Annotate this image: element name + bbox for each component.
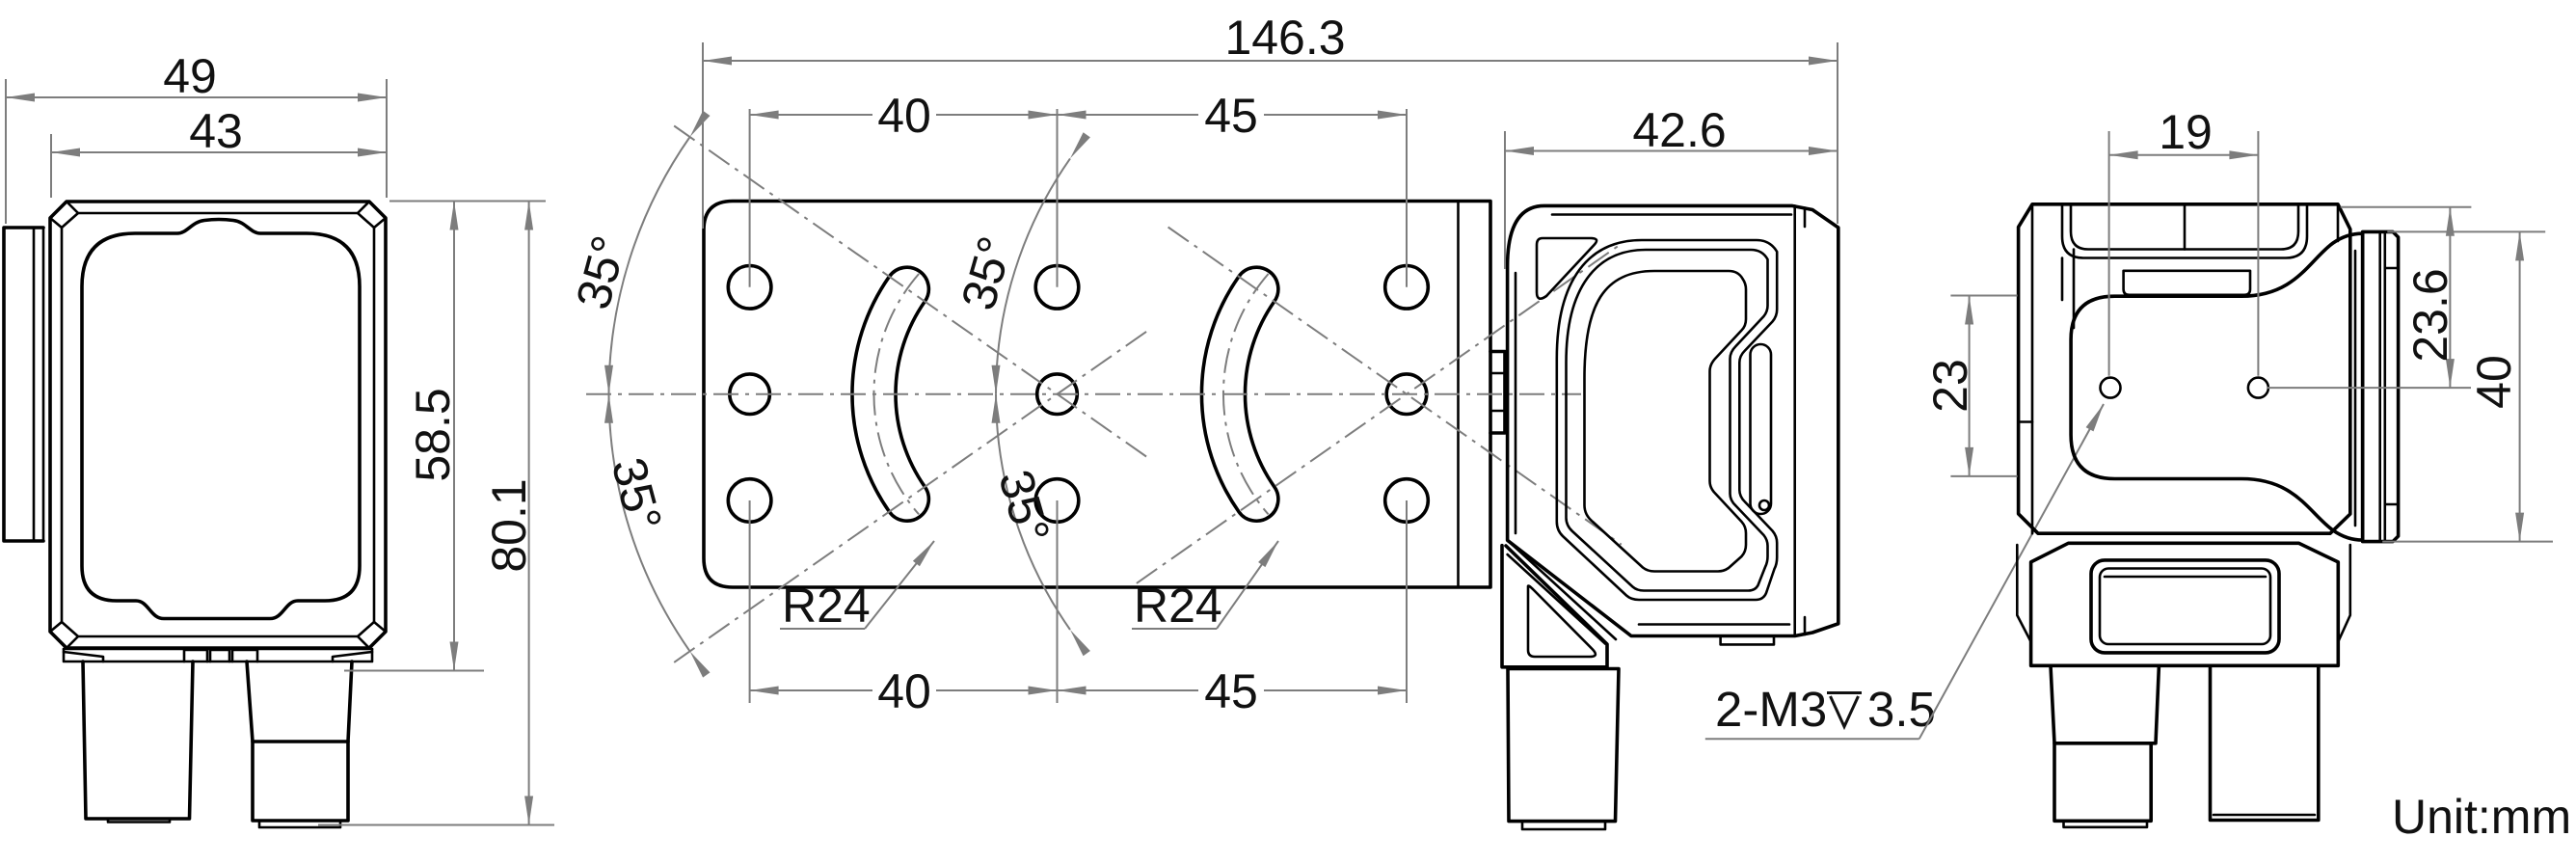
svg-text:Unit:mm: Unit:mm [2392,790,2571,844]
svg-text:45: 45 [1204,89,1258,143]
svg-text:49: 49 [163,49,217,103]
svg-text:40: 40 [2467,355,2521,409]
svg-text:19: 19 [2159,105,2213,159]
svg-text:42.6: 42.6 [1632,103,1726,157]
svg-text:23.6: 23.6 [2403,268,2457,362]
svg-text:58.5: 58.5 [406,388,460,481]
svg-text:146.3: 146.3 [1224,11,1345,65]
svg-text:45: 45 [1204,664,1258,718]
svg-text:R24: R24 [782,579,871,633]
svg-text:40: 40 [877,664,931,718]
svg-text:43: 43 [189,104,243,158]
svg-text:40: 40 [877,89,931,143]
svg-text:R24: R24 [1134,579,1222,633]
svg-text:2-M3: 2-M3 [1715,682,1827,737]
svg-text:23: 23 [1923,359,1977,413]
svg-text:80.1: 80.1 [482,478,536,572]
